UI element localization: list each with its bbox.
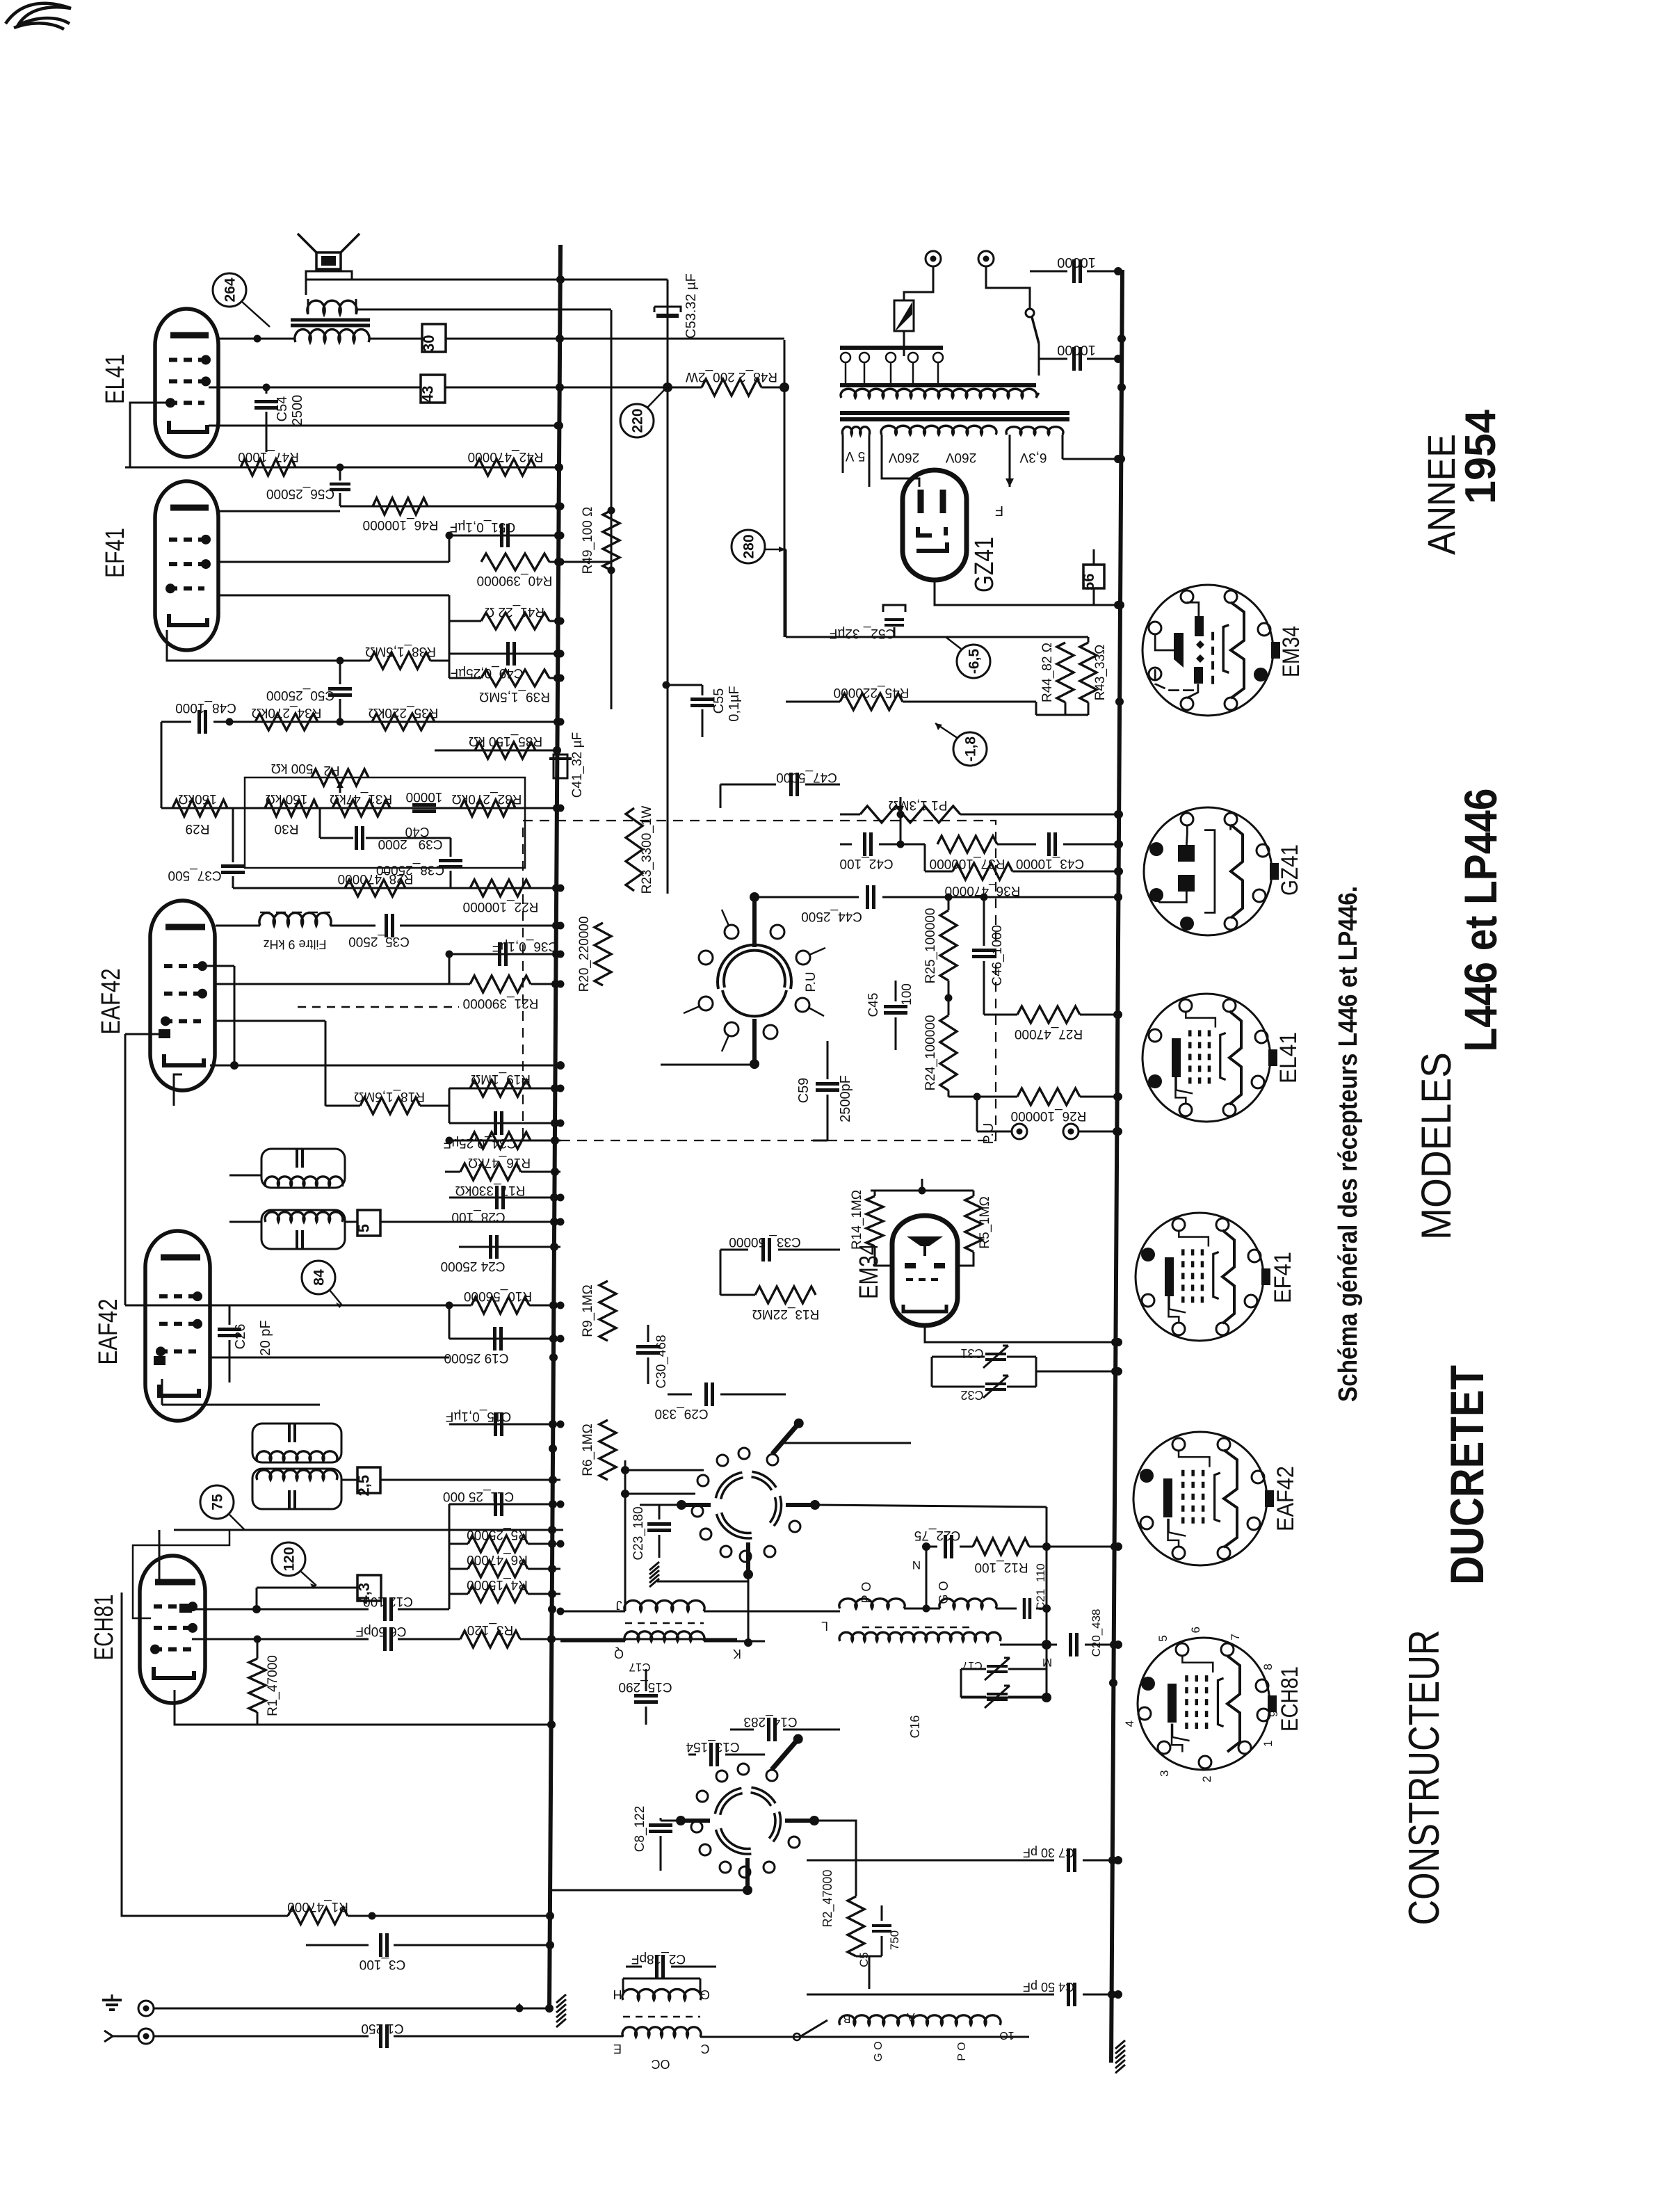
svg-text:ECH81: ECH81 xyxy=(1277,1666,1303,1732)
svg-text:C29_330: C29_330 xyxy=(654,1406,708,1421)
svg-text:750: 750 xyxy=(888,1930,901,1950)
svg-text:R48_2 200_2W: R48_2 200_2W xyxy=(686,369,777,384)
svg-text:C22_75: C22_75 xyxy=(914,1528,961,1542)
svg-text:G: G xyxy=(700,1988,710,2001)
svg-text:EF41: EF41 xyxy=(1270,1252,1296,1303)
svg-text:C54: C54 xyxy=(275,396,290,422)
svg-text:280: 280 xyxy=(741,534,757,558)
svg-text:8: 8 xyxy=(1261,1663,1275,1670)
svg-text:OC: OC xyxy=(651,2057,670,2071)
svg-text:N: N xyxy=(912,1558,921,1572)
svg-text:2500: 2500 xyxy=(290,395,305,426)
svg-text:C11_25 000: C11_25 000 xyxy=(443,1489,514,1503)
svg-text:G O: G O xyxy=(937,1581,951,1604)
svg-text:C20_438: C20_438 xyxy=(1090,1609,1103,1656)
svg-text:EAF42: EAF42 xyxy=(94,1299,123,1365)
svg-text:2,5: 2,5 xyxy=(355,1475,373,1497)
svg-text:R31_47kΩ: R31_47kΩ xyxy=(330,791,392,806)
svg-text:6,3V: 6,3V xyxy=(1019,450,1047,465)
svg-text:C37_500: C37_500 xyxy=(168,868,221,882)
svg-text:30: 30 xyxy=(420,334,437,351)
svg-text:260V: 260V xyxy=(888,450,919,465)
svg-text:R26_100000: R26_100000 xyxy=(1011,1108,1087,1123)
svg-text:R35_150 kΩ: R35_150 kΩ xyxy=(469,734,542,748)
svg-text:75: 75 xyxy=(209,1494,225,1510)
svg-text:R1_47000: R1_47000 xyxy=(266,1655,280,1716)
svg-text:B: B xyxy=(843,2013,851,2024)
svg-text:R6_1MΩ: R6_1MΩ xyxy=(581,1424,595,1476)
svg-text:L446 et LP446: L446 et LP446 xyxy=(1455,789,1506,1052)
svg-text:20 pF: 20 pF xyxy=(258,1320,273,1355)
svg-text:C43_10000: C43_10000 xyxy=(1016,856,1084,871)
svg-text:C52_ 32µF: C52_ 32µF xyxy=(830,626,895,640)
svg-text:Filtre 9 kHz: Filtre 9 kHz xyxy=(263,937,326,951)
svg-text:2: 2 xyxy=(1200,1776,1213,1782)
svg-text:C30_468: C30_468 xyxy=(654,1335,669,1388)
svg-text:56: 56 xyxy=(1080,573,1097,590)
svg-text:R43_33Ω: R43_33Ω xyxy=(1093,645,1108,701)
svg-text:F: F xyxy=(995,503,1003,518)
svg-text:C6 50pF: C6 50pF xyxy=(356,1624,407,1638)
svg-text:R46_100000: R46_100000 xyxy=(363,517,439,532)
svg-text:220: 220 xyxy=(629,408,645,433)
svg-text:R42_470000: R42_470000 xyxy=(468,449,544,464)
svg-text:C: C xyxy=(701,2042,710,2056)
svg-text:P1 1,3MΩ: P1 1,3MΩ xyxy=(889,798,948,812)
svg-text:R13_22MΩ: R13_22MΩ xyxy=(752,1307,820,1321)
svg-text:4: 4 xyxy=(1123,1720,1136,1727)
svg-text:EL41: EL41 xyxy=(101,354,130,404)
svg-text:5: 5 xyxy=(355,1224,373,1232)
svg-text:R38_1,5MΩ: R38_1,5MΩ xyxy=(365,644,436,659)
svg-text:DUCRETET: DUCRETET xyxy=(1441,1365,1494,1585)
svg-text:C21_110: C21_110 xyxy=(1034,1563,1047,1611)
svg-text:3: 3 xyxy=(1158,1770,1171,1776)
svg-text:R45_220000: R45_220000 xyxy=(834,685,910,700)
svg-text:10000: 10000 xyxy=(1057,255,1096,270)
svg-text:K: K xyxy=(733,1647,741,1661)
svg-text:R1_47000: R1_47000 xyxy=(287,1899,348,1914)
svg-text:C16: C16 xyxy=(908,1715,922,1738)
svg-text:ECH81: ECH81 xyxy=(90,1595,119,1661)
svg-text:C36_0,1µF: C36_0,1µF xyxy=(492,939,558,953)
svg-text:6: 6 xyxy=(1189,1627,1202,1633)
svg-text:G O: G O xyxy=(873,2041,885,2061)
svg-text:R6_47000: R6_47000 xyxy=(467,1552,528,1567)
svg-text:264: 264 xyxy=(222,277,238,302)
svg-text:EM34: EM34 xyxy=(1278,626,1305,677)
svg-text:C45: C45 xyxy=(866,993,881,1017)
svg-text:R14_1MΩ: R14_1MΩ xyxy=(850,1190,864,1250)
svg-text:R5_25000: R5_25000 xyxy=(467,1527,528,1542)
svg-text:R47_1000: R47_1000 xyxy=(238,449,299,464)
svg-text:P O: P O xyxy=(956,2042,968,2061)
svg-text:C13_154: C13_154 xyxy=(686,1739,740,1754)
svg-text:C32: C32 xyxy=(960,1388,983,1402)
svg-text:R39_1,5MΩ: R39_1,5MΩ xyxy=(479,689,550,704)
svg-text:E: E xyxy=(613,2042,622,2056)
svg-text:500 kΩ: 500 kΩ xyxy=(271,761,314,775)
svg-text:1: 1 xyxy=(1261,1740,1275,1746)
svg-text:GZ41: GZ41 xyxy=(1277,844,1303,896)
svg-text:EF41: EF41 xyxy=(101,528,130,578)
svg-text:260V: 260V xyxy=(945,450,976,465)
svg-text:C33_ 50000: C33_ 50000 xyxy=(729,1234,801,1249)
svg-text:1O: 1O xyxy=(999,2029,1014,2041)
svg-text:1954: 1954 xyxy=(1457,410,1505,504)
svg-text:Schéma général des récepteurs: Schéma général des récepteurs L446 et LP… xyxy=(1334,886,1363,1402)
svg-text:C53.32 µF: C53.32 µF xyxy=(684,273,699,339)
svg-text:10000: 10000 xyxy=(1057,342,1096,357)
svg-text:C4 50 pF: C4 50 pF xyxy=(1023,1980,1074,1994)
svg-text:R22_100000: R22_100000 xyxy=(463,899,539,914)
svg-text:R24_100000: R24_100000 xyxy=(923,1015,938,1091)
svg-text:C59: C59 xyxy=(796,1078,811,1104)
svg-text:C31: C31 xyxy=(960,1346,983,1360)
svg-text:CONSTRUCTEUR: CONSTRUCTEUR xyxy=(1400,1630,1448,1926)
svg-text:150kΩ: 150kΩ xyxy=(178,791,216,806)
svg-text:C47_5000: C47_5000 xyxy=(776,770,837,784)
svg-text:Q: Q xyxy=(614,1647,624,1661)
svg-text:C40: C40 xyxy=(405,824,430,839)
svg-text:C46_1000: C46_1000 xyxy=(990,925,1005,986)
svg-text:120: 120 xyxy=(281,1547,297,1571)
svg-text:R2_47000: R2_47000 xyxy=(821,1869,835,1927)
svg-text:2500pF: 2500pF xyxy=(838,1075,853,1122)
svg-text:R23_3300_1W: R23_3300_1W xyxy=(640,806,654,894)
svg-text:R18_1,5MΩ: R18_1,5MΩ xyxy=(354,1089,425,1104)
svg-text:R27_47000: R27_47000 xyxy=(1015,1026,1083,1041)
svg-text:R17_330kΩ: R17_330kΩ xyxy=(455,1183,526,1198)
svg-text:C24 25000: C24 25000 xyxy=(441,1259,506,1273)
svg-text:150 kΩ: 150 kΩ xyxy=(266,791,308,806)
svg-text:R30: R30 xyxy=(275,821,299,836)
svg-text:L: L xyxy=(821,1619,828,1633)
svg-text:P.U: P.U xyxy=(804,971,818,992)
svg-text:C12 100: C12 100 xyxy=(363,1594,413,1609)
svg-text:5 V: 5 V xyxy=(845,449,865,463)
svg-text:C7 30 pF: C7 30 pF xyxy=(1023,1846,1074,1860)
svg-text:MODELES: MODELES xyxy=(1413,1052,1460,1240)
svg-text:R20_220000: R20_220000 xyxy=(577,917,592,992)
svg-text:R28_470000: R28_470000 xyxy=(338,871,414,886)
svg-text:C15_290: C15_290 xyxy=(618,1679,672,1694)
svg-text:C2_18pF: C2_18pF xyxy=(631,1951,686,1966)
svg-text:100: 100 xyxy=(900,983,914,1006)
svg-text:84: 84 xyxy=(311,1269,327,1286)
svg-text:R34_270kΩ: R34_270kΩ xyxy=(252,705,322,720)
svg-text:R19_1MΩ: R19_1MΩ xyxy=(471,1072,531,1086)
svg-text:C50_25000: C50_25000 xyxy=(266,688,334,702)
svg-text:R9_1MΩ: R9_1MΩ xyxy=(581,1284,595,1337)
svg-text:C35_2500: C35_2500 xyxy=(348,934,410,949)
svg-text:R29: R29 xyxy=(186,821,210,836)
svg-text:R10_56000: R10_56000 xyxy=(464,1289,532,1303)
svg-text:C44_2500: C44_2500 xyxy=(801,909,862,924)
svg-text:C17: C17 xyxy=(629,1661,650,1674)
svg-text:0,1µF: 0,1µF xyxy=(727,686,742,722)
svg-text:C56_25000: C56_25000 xyxy=(266,486,334,501)
svg-text:C19 25000: C19 25000 xyxy=(444,1351,509,1365)
svg-text:R41_22 Ω: R41_22 Ω xyxy=(485,604,544,619)
svg-text:C55: C55 xyxy=(711,688,727,714)
svg-text:GZ41: GZ41 xyxy=(970,537,999,592)
svg-text:C3_100: C3_100 xyxy=(360,1957,406,1972)
svg-text:A: A xyxy=(907,2010,915,2024)
svg-text:-1,8: -1,8 xyxy=(962,736,978,762)
svg-text:R5_1MΩ: R5_1MΩ xyxy=(978,1196,992,1248)
svg-text:C15_0,1µF: C15_0,1µF xyxy=(446,1409,511,1424)
svg-text:H: H xyxy=(613,1988,622,2001)
svg-text:C26: C26 xyxy=(233,1324,248,1350)
svg-text:C14_283: C14_283 xyxy=(743,1714,797,1729)
svg-text:EL41: EL41 xyxy=(1275,1032,1302,1083)
svg-text:R12_100: R12_100 xyxy=(974,1560,1028,1574)
svg-text:C8_122: C8_122 xyxy=(633,1806,647,1853)
svg-text:C42_100: C42_100 xyxy=(839,856,893,871)
svg-text:R3_120: R3_120 xyxy=(467,1622,514,1637)
svg-text:R40_390000: R40_390000 xyxy=(477,573,553,588)
svg-text:R44_82 Ω: R44_82 Ω xyxy=(1040,643,1055,702)
svg-text:43: 43 xyxy=(419,385,437,402)
svg-text:C41_32 µF: C41_32 µF xyxy=(570,732,585,798)
svg-text:R32_270kΩ: R32_270kΩ xyxy=(452,791,522,806)
svg-text:10000: 10000 xyxy=(406,789,443,804)
svg-text:R21_390000: R21_390000 xyxy=(463,996,539,1010)
svg-text:EM34: EM34 xyxy=(855,1243,884,1299)
svg-text:P O: P O xyxy=(859,1582,873,1604)
svg-text:C23_180: C23_180 xyxy=(631,1506,646,1560)
svg-text:R49_100 Ω: R49_100 Ω xyxy=(581,507,595,574)
svg-text:EAF42: EAF42 xyxy=(1273,1466,1299,1531)
svg-text:J: J xyxy=(616,1598,622,1612)
svg-text:5: 5 xyxy=(1156,1635,1170,1641)
svg-text:R25_100000: R25_100000 xyxy=(923,908,938,984)
svg-text:R4_15000: R4_15000 xyxy=(467,1577,528,1592)
svg-text:EAF42: EAF42 xyxy=(97,969,126,1035)
svg-text:C51_0,1µF: C51_0,1µF xyxy=(450,519,515,534)
svg-text:R35_220kΩ: R35_220kΩ xyxy=(369,705,439,720)
svg-text:C1 250: C1 250 xyxy=(361,2021,403,2035)
svg-text:7: 7 xyxy=(1229,1634,1242,1640)
svg-text:-6,5: -6,5 xyxy=(966,649,982,675)
